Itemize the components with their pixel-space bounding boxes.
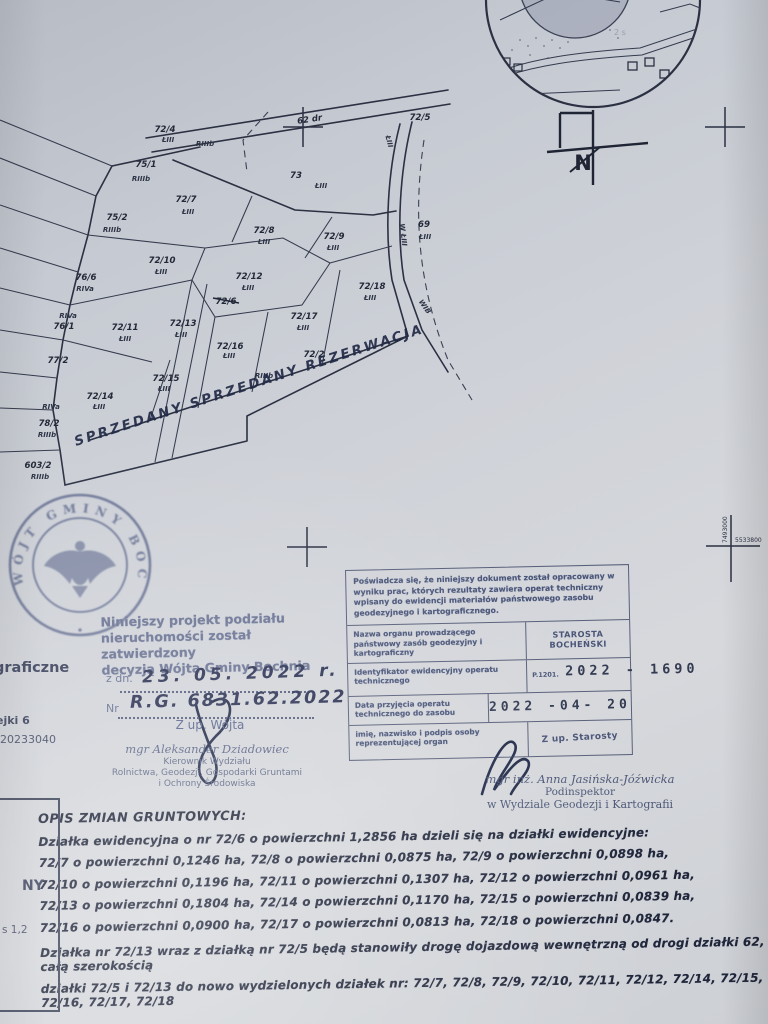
svg-text:603/2: 603/2 [24, 461, 51, 471]
certification-table: Poświadcza się, że niniejszy dokument zo… [345, 564, 633, 760]
svg-text:75/1: 75/1 [135, 160, 156, 170]
date-prefix: z dn. [106, 672, 133, 685]
parcel-map [0, 90, 472, 485]
north-letter: N [574, 151, 592, 175]
row-label: imię, nazwisko i podpis osoby reprezentu… [349, 722, 529, 760]
svg-text:69: 69 [418, 220, 430, 230]
approval-line: nieruchomości został zatwierdzony [101, 625, 332, 662]
svg-text:72/6: 72/6 [215, 297, 236, 307]
svg-text:75/2: 75/2 [106, 213, 127, 223]
row-value: P.1201. 2022 - 1690 [527, 658, 631, 692]
svg-text:78/2: 78/2 [38, 419, 59, 429]
svg-text:72/4: 72/4 [154, 125, 175, 135]
location-inset-map: 2 s [486, 0, 702, 107]
svg-text:72/18: 72/18 [358, 282, 385, 292]
svg-text:5533800: 5533800 [735, 537, 762, 544]
svg-text:72/14: 72/14 [86, 392, 113, 402]
svg-text:RIIIb: RIIIb [196, 140, 214, 148]
svg-text:72/5: 72/5 [409, 113, 430, 123]
svg-text:ŁIII: ŁIII [326, 244, 340, 252]
row-label: Data przyjęcia operatu technicznego do z… [349, 694, 490, 725]
svg-text:ŁIII: ŁIII [181, 208, 195, 216]
row-label: Nazwa organu prowadzącego państwowy zasó… [347, 622, 527, 662]
box-fragment: s 1,2 [2, 924, 28, 936]
svg-text:72/15: 72/15 [152, 374, 179, 384]
official-role: Kierownik Wydziału [92, 757, 322, 767]
svg-text:76/1: 76/1 [53, 322, 74, 332]
svg-text:72/17: 72/17 [290, 312, 317, 322]
scanned-cadastral-document: 2 s N 7493000 5533800 [0, 0, 768, 1024]
svg-text:RIVa: RIVa [76, 285, 94, 293]
eagle-emblem [44, 541, 116, 598]
description-line: Działka ewidencyjna o nr 72/6 o powierzc… [38, 823, 764, 848]
svg-text:ŁIII: ŁIII [118, 335, 132, 343]
north-arrow [547, 110, 648, 185]
svg-text:RIIIb: RIIIb [103, 226, 121, 234]
svg-text:7493000: 7493000 [722, 516, 729, 543]
svg-text:ŁIII: ŁIII [154, 268, 168, 276]
land-change-description: OPIS ZMIAN GRUNTOWYCH: Działka ewidencyj… [38, 801, 767, 1010]
official-role: i Ochrony Środowiska [92, 779, 322, 789]
left-fragment-text: ejki 6 [0, 714, 30, 727]
parcel-labels: 62 dr 72/5 72/4 ŁIII RIIIb 75/1 RIIIb 73… [24, 113, 432, 481]
acceptance-date-stamp: 2022 -04- 20 [489, 700, 631, 713]
on-behalf-of-mayor: Z up. Wójta [150, 718, 270, 732]
svg-text:RIIIb: RIIIb [132, 175, 150, 183]
svg-text:ŁIII: ŁIII [257, 238, 271, 246]
number-prefix: Nr [106, 702, 119, 715]
coordinate-cross-labels: 7493000 5533800 [722, 516, 762, 544]
svg-text:72/11: 72/11 [111, 323, 138, 333]
official-role: Rolnictwa, Geodezji, Gospodarki Gruntami [92, 768, 322, 778]
svg-text:ŁIII: ŁIII [241, 284, 255, 292]
svg-text:RIIIb: RIIIb [31, 473, 49, 481]
left-cut-box: NY s 1,2 [0, 798, 60, 1012]
description-line: 72/13 o powierzchni 0,1804 ha, 72/14 o p… [39, 888, 765, 913]
svg-text:ŁIII: ŁIII [314, 182, 328, 190]
svg-text:77/2: 77/2 [47, 356, 68, 366]
svg-text:ŁIII: ŁIII [157, 385, 171, 393]
svg-text:WIB: WIB [417, 298, 433, 315]
table-row: Nazwa organu prowadzącego państwowy zasó… [347, 620, 630, 663]
svg-text:76/6: 76/6 [75, 273, 96, 283]
operat-id-number: 2022 - 1690 [565, 663, 699, 676]
svg-text:73: 73 [290, 171, 302, 181]
svg-text:RIVa: RIVa [59, 312, 77, 320]
left-fragment-number: 120233040 [0, 733, 56, 746]
svg-text:RIIIb: RIIIb [38, 431, 56, 439]
box-fragment: NY [22, 878, 44, 894]
inspector-role: Podinspektor [430, 786, 730, 798]
svg-text:ŁIII: ŁIII [92, 403, 106, 411]
svg-text:ŁIII: ŁIII [296, 324, 310, 332]
description-line: 72/7 o powierzchni 0,1246 ha, 72/8 o pow… [39, 845, 765, 870]
svg-text:72/9: 72/9 [323, 232, 344, 242]
svg-text:72/7: 72/7 [175, 195, 196, 205]
svg-text:72/16: 72/16 [216, 342, 243, 352]
svg-text:ŁIII: ŁIII [418, 233, 432, 241]
operat-id-prefix: P.1201. [532, 669, 559, 680]
row-label: Identyfikator ewidencyjny operatu techni… [348, 660, 528, 696]
inspector-name: mgr inż. Anna Jasińska-Jóźwicka [430, 772, 730, 786]
official-name: mgr Aleksander Dziadowiec [92, 742, 322, 756]
on-behalf-of-starost: Z up. Starosty [542, 730, 619, 744]
svg-text:ŁIII: ŁIII [174, 331, 188, 339]
svg-text:RIVa: RIVa [42, 403, 60, 411]
certification-statement: Poświadcza się, że niniejszy dokument zo… [346, 565, 629, 626]
svg-text:72/8: 72/8 [253, 226, 274, 236]
svg-text:72/12: 72/12 [235, 272, 262, 282]
svg-text:72/10: 72/10 [148, 256, 175, 266]
left-fragment-text: graficzne [0, 660, 69, 676]
inset-faint-label: 2 s [614, 28, 626, 37]
svg-text:72/13: 72/13 [169, 319, 196, 329]
description-line: 72/10 o powierzchni 0,1196 ha, 72/11 o p… [39, 866, 765, 891]
svg-text:ŁIII: ŁIII [363, 294, 377, 302]
svg-text:ŁIII: ŁIII [222, 352, 236, 360]
table-row: imię, nazwisko i podpis osoby reprezentu… [349, 720, 632, 760]
row-value: STAROSTA BOCHEŃSKI [526, 620, 630, 659]
svg-text:ŁIII: ŁIII [161, 136, 175, 144]
description-line: Działka nr 72/13 wraz z działką nr 72/5 … [40, 935, 766, 974]
inset-outer-line [660, 4, 700, 12]
svg-text:W ŁIII: W ŁIII [398, 223, 409, 247]
svg-text:ŁIII: ŁIII [383, 133, 394, 148]
